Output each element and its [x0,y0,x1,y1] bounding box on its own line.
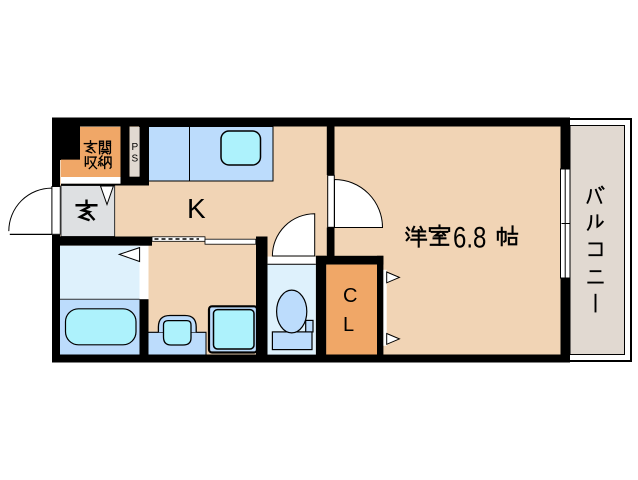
svg-text:S: S [132,153,139,164]
svg-text:6.8: 6.8 [453,220,486,254]
svg-text:K: K [187,193,206,224]
svg-text:L: L [343,314,354,336]
svg-text:C: C [343,285,357,307]
svg-text:P: P [132,142,139,153]
